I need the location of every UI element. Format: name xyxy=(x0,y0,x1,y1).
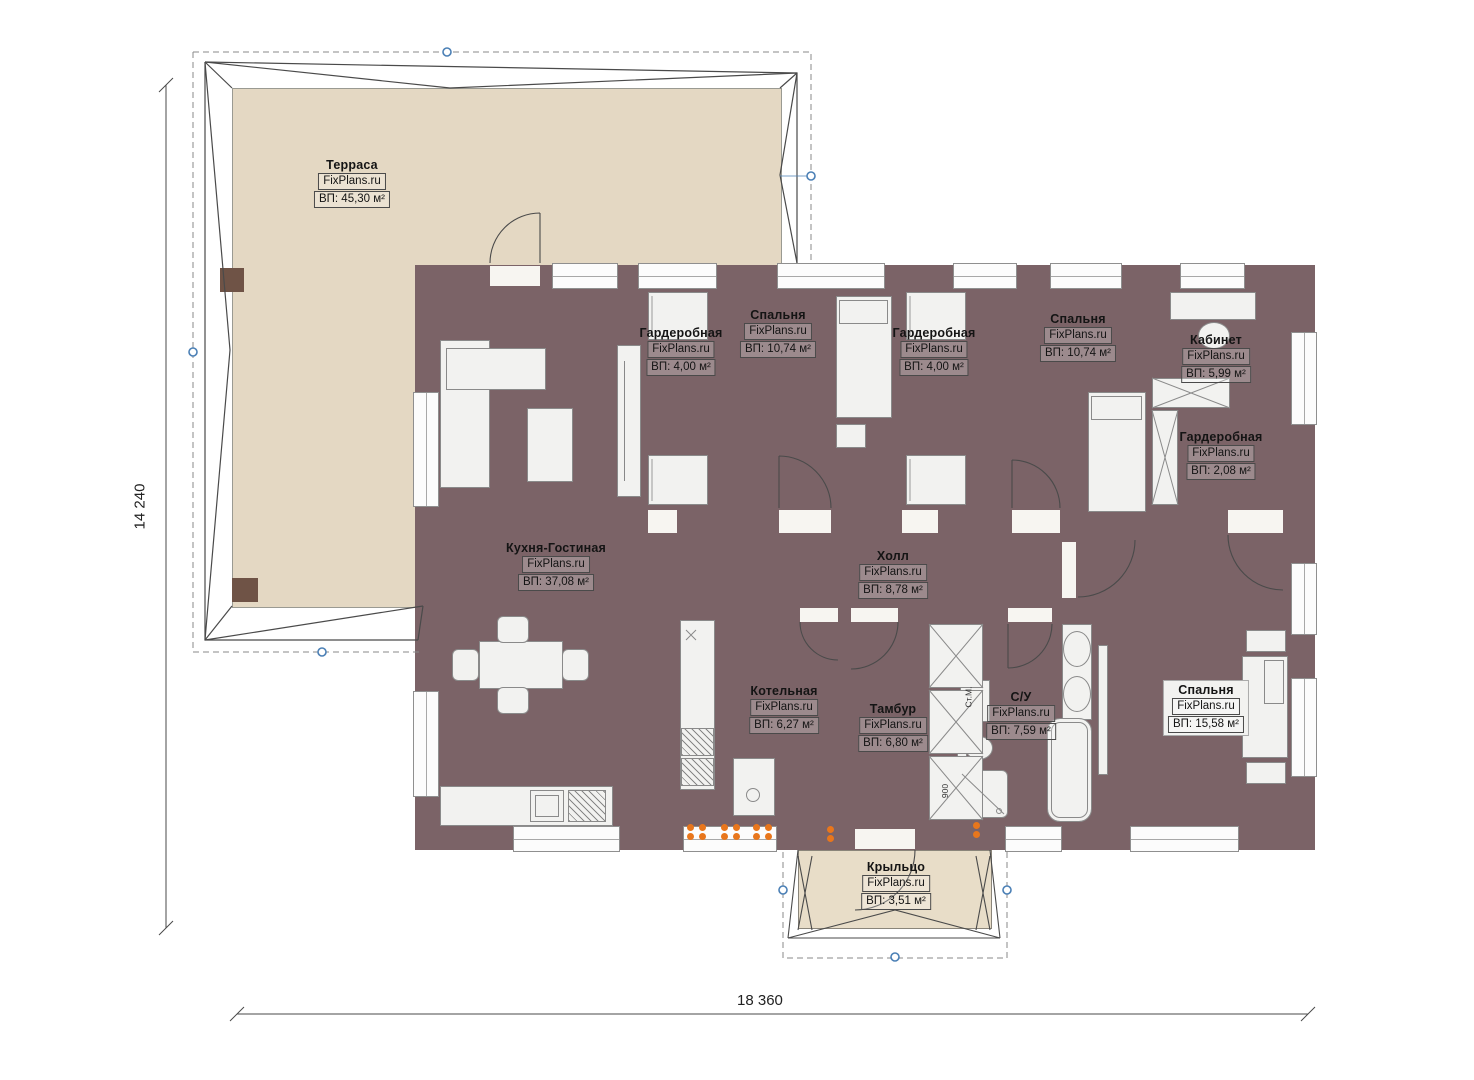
room-label-bedroom3: Спальня FixPlans.ru ВП: 15,58 м² xyxy=(1163,680,1249,736)
room-label-hall: Холл FixPlans.ru ВП: 8,78 м² xyxy=(858,549,928,599)
window xyxy=(953,263,1017,289)
door-opening xyxy=(1062,542,1076,598)
window xyxy=(513,826,620,852)
door-opening xyxy=(648,510,677,533)
nightstand xyxy=(836,424,866,448)
radiator xyxy=(721,824,728,831)
window xyxy=(1180,263,1245,289)
terrace-post xyxy=(232,578,258,602)
door-opening xyxy=(490,266,540,286)
stove xyxy=(568,790,606,822)
watermark: FixPlans.ru xyxy=(750,699,818,716)
room-label-vestibule: Тамбур FixPlans.ru ВП: 6,80 м² xyxy=(858,702,928,752)
window xyxy=(683,826,777,852)
watermark: FixPlans.ru xyxy=(744,323,812,340)
door-opening xyxy=(855,829,915,849)
room-label-wardrobe3: Гардеробная FixPlans.ru ВП: 2,08 м² xyxy=(1179,430,1262,480)
window xyxy=(552,263,618,289)
terrace-post xyxy=(220,268,244,292)
radiator xyxy=(687,824,694,831)
chair xyxy=(562,649,589,681)
watermark: FixPlans.ru xyxy=(1182,348,1250,365)
pillow xyxy=(1091,396,1142,420)
door-opening xyxy=(1228,510,1283,533)
room-area: ВП: 6,80 м² xyxy=(858,735,928,752)
dimension-width: 18 360 xyxy=(737,992,783,1009)
radiator xyxy=(765,824,772,831)
watermark: FixPlans.ru xyxy=(1187,445,1255,462)
room-label-cabinet: Кабинет FixPlans.ru ВП: 5,99 м² xyxy=(1181,333,1251,383)
washing-machine-label: Ст.М. xyxy=(963,687,973,708)
closet xyxy=(1152,410,1178,505)
room-label-wardrobe1: Гардеробная FixPlans.ru ВП: 4,00 м² xyxy=(639,326,722,376)
room-area: ВП: 2,08 м² xyxy=(1186,463,1256,480)
shower-size-label: 900 xyxy=(940,784,950,798)
appliance xyxy=(681,728,714,756)
room-area: ВП: 4,00 м² xyxy=(899,359,969,376)
room-label-bathroom: С/У FixPlans.ru ВП: 7,59 м² xyxy=(986,690,1056,740)
watermark: FixPlans.ru xyxy=(522,556,590,573)
watermark: FixPlans.ru xyxy=(987,705,1055,722)
wall xyxy=(1060,510,1228,533)
room-area: ВП: 45,30 м² xyxy=(314,191,390,208)
radiator xyxy=(973,822,980,829)
boiler-dial xyxy=(746,788,760,802)
closet xyxy=(929,690,983,754)
room-label-terrace: Терраса FixPlans.ru ВП: 45,30 м² xyxy=(314,158,390,208)
window xyxy=(413,691,439,797)
room-area: ВП: 10,74 м² xyxy=(740,341,816,358)
pillow xyxy=(839,300,888,324)
room-area: ВП: 6,27 м² xyxy=(749,717,819,734)
watermark: FixPlans.ru xyxy=(900,341,968,358)
room-area: ВП: 3,51 м² xyxy=(861,893,931,910)
wall xyxy=(715,608,729,828)
radiator xyxy=(699,824,706,831)
wall xyxy=(829,608,843,828)
watermark: FixPlans.ru xyxy=(859,717,927,734)
kitchen-sink xyxy=(530,790,564,822)
wall xyxy=(831,510,902,533)
radiator xyxy=(733,824,740,831)
window xyxy=(638,263,717,289)
room-area: ВП: 4,00 м² xyxy=(646,359,716,376)
door-opening xyxy=(851,608,898,622)
room-label-boiler: Котельная FixPlans.ru ВП: 6,27 м² xyxy=(749,684,819,734)
dimension-height: 14 240 xyxy=(132,472,149,542)
window xyxy=(1291,678,1317,777)
window xyxy=(777,263,885,289)
room-area: ВП: 37,08 м² xyxy=(518,574,594,591)
room-area: ВП: 10,74 м² xyxy=(1040,345,1116,362)
wall xyxy=(677,510,779,533)
wardrobe-cabinet xyxy=(1098,645,1108,775)
dining-table xyxy=(479,641,563,689)
room-label-bedroom1: Спальня FixPlans.ru ВП: 10,74 м² xyxy=(740,308,816,358)
room-label-bedroom2: Спальня FixPlans.ru ВП: 10,74 м² xyxy=(1040,312,1116,362)
window xyxy=(1291,563,1317,635)
wall xyxy=(1283,510,1293,533)
wall xyxy=(1062,533,1076,542)
window xyxy=(1291,332,1317,425)
appliance xyxy=(681,758,714,786)
wall xyxy=(968,287,982,510)
chair xyxy=(452,649,479,681)
sink xyxy=(1063,631,1091,667)
wall xyxy=(985,608,1008,622)
watermark: FixPlans.ru xyxy=(647,341,715,358)
watermark: FixPlans.ru xyxy=(1172,698,1240,715)
sofa xyxy=(446,348,546,390)
door-opening xyxy=(800,608,838,622)
watermark: FixPlans.ru xyxy=(862,875,930,892)
boiler xyxy=(733,758,775,816)
wall xyxy=(890,287,904,510)
coffee-table xyxy=(527,408,573,482)
sink xyxy=(1063,676,1091,712)
closet xyxy=(929,756,983,820)
room-area: ВП: 7,59 м² xyxy=(986,723,1056,740)
radiator xyxy=(753,824,760,831)
wardrobe-cabinet xyxy=(906,455,966,505)
watermark: FixPlans.ru xyxy=(859,564,927,581)
door-opening xyxy=(1012,510,1060,533)
window xyxy=(1005,826,1062,852)
wall xyxy=(938,510,1012,533)
nightstand xyxy=(1246,762,1286,784)
window xyxy=(1050,263,1122,289)
wardrobe-cabinet xyxy=(648,455,708,505)
closet xyxy=(929,624,983,688)
room-label-porch: Крыльцо FixPlans.ru ВП: 3,51 м² xyxy=(861,860,931,910)
room-area: ВП: 5,99 м² xyxy=(1181,366,1251,383)
chair xyxy=(497,616,529,643)
chair xyxy=(497,687,529,714)
door-opening xyxy=(779,510,831,533)
room-label-wardrobe2: Гардеробная FixPlans.ru ВП: 4,00 м² xyxy=(892,326,975,376)
nightstand xyxy=(1246,630,1286,652)
room-label-kitchen: Кухня-Гостиная FixPlans.ru ВП: 37,08 м² xyxy=(506,541,606,591)
wall xyxy=(710,287,724,510)
room-area: ВП: 8,78 м² xyxy=(858,582,928,599)
tv-stand xyxy=(617,345,641,497)
pillow xyxy=(1264,660,1284,704)
door-opening xyxy=(902,510,938,533)
window xyxy=(1130,826,1239,852)
radiator xyxy=(827,826,834,833)
watermark: FixPlans.ru xyxy=(318,173,386,190)
floor-plan: Терраса FixPlans.ru ВП: 45,30 м² Гардеро… xyxy=(0,0,1474,1080)
watermark: FixPlans.ru xyxy=(1044,327,1112,344)
window xyxy=(413,392,439,507)
wall xyxy=(1052,608,1097,622)
desk xyxy=(1170,292,1256,320)
room-area: ВП: 15,58 м² xyxy=(1168,716,1244,733)
wall xyxy=(715,608,800,622)
door-opening xyxy=(1008,608,1052,622)
